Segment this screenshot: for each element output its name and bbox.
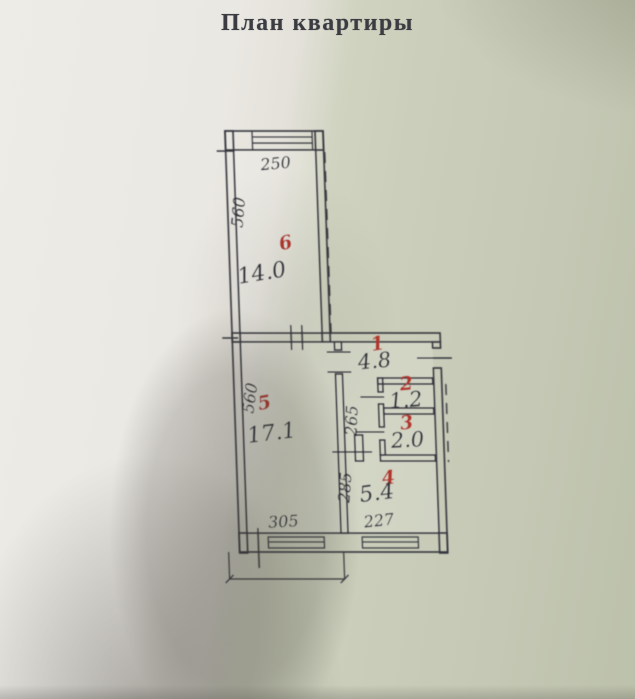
room6-window-symbol bbox=[252, 131, 313, 150]
shared-wall bbox=[232, 333, 440, 342]
room6-top-wall bbox=[225, 131, 324, 150]
room-4-area: 5.4 bbox=[358, 479, 396, 508]
balcony-door-mark bbox=[258, 528, 259, 568]
dim-kitchen-width: 227 bbox=[362, 509, 397, 531]
room-2-area: 1.2 bbox=[388, 387, 424, 413]
dashed-boundary-right-of-room6 bbox=[325, 152, 331, 336]
block-right-wall-top bbox=[432, 342, 440, 348]
photo-of-floor-plan: План квартиры bbox=[0, 0, 635, 699]
floor-plan: 6 5 1 2 3 4 14.0 17.1 4.8 1.2 2.0 5.4 25… bbox=[0, 0, 635, 699]
plan-drawing: 6 5 1 2 3 4 14.0 17.1 4.8 1.2 2.0 5.4 25… bbox=[210, 131, 460, 583]
kitchen-window-symbol bbox=[362, 537, 418, 548]
dim-kitchen-depth: 285 bbox=[334, 471, 355, 504]
balcony-outline bbox=[229, 552, 345, 579]
dim-room6-depth: 560 bbox=[228, 196, 250, 229]
dim-room6-width: 250 bbox=[258, 153, 292, 175]
room-1-area: 4.8 bbox=[355, 348, 392, 375]
room-3-area: 2.0 bbox=[389, 427, 425, 453]
dim-room5-width: 305 bbox=[267, 511, 299, 532]
dim-hall-depth: 265 bbox=[342, 405, 362, 438]
room5-window-symbol bbox=[268, 537, 324, 548]
dashed-boundary-right-of-wc bbox=[446, 384, 449, 462]
